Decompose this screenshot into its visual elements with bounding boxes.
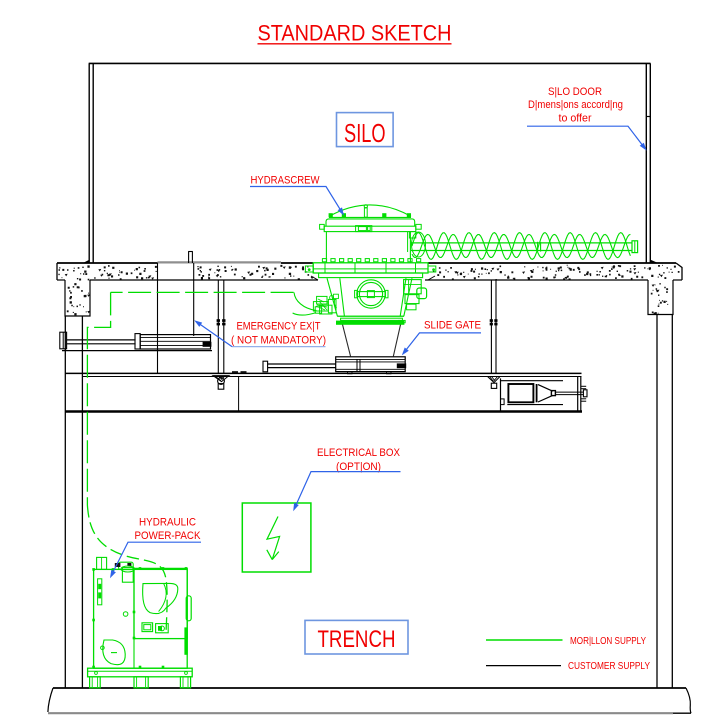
svg-text:to offer: to offer — [559, 112, 592, 124]
svg-text:CUSTOMER SUPPLY: CUSTOMER SUPPLY — [568, 661, 650, 672]
svg-text:ELECTRICAL BOX: ELECTRICAL BOX — [317, 447, 400, 459]
svg-text:MOR|LLON SUPPLY: MOR|LLON SUPPLY — [570, 636, 646, 647]
svg-text:SLIDE GATE: SLIDE GATE — [424, 319, 481, 331]
svg-text:EMERGENCY EX|T: EMERGENCY EX|T — [237, 320, 321, 332]
svg-text:S|LO DOOR: S|LO DOOR — [548, 86, 602, 98]
svg-text:SILO: SILO — [344, 120, 386, 148]
svg-text:TRENCH: TRENCH — [318, 626, 396, 653]
svg-text:STANDARD SKETCH: STANDARD SKETCH — [258, 21, 452, 46]
svg-text:HYDRAULIC: HYDRAULIC — [139, 516, 196, 528]
svg-text:D|mens|ons accord|ng: D|mens|ons accord|ng — [528, 99, 623, 111]
svg-text:POWER-PACK: POWER-PACK — [135, 530, 201, 542]
svg-text:HYDRASCREW: HYDRASCREW — [251, 175, 320, 187]
svg-text:( NOT MANDATORY): ( NOT MANDATORY) — [231, 334, 326, 346]
